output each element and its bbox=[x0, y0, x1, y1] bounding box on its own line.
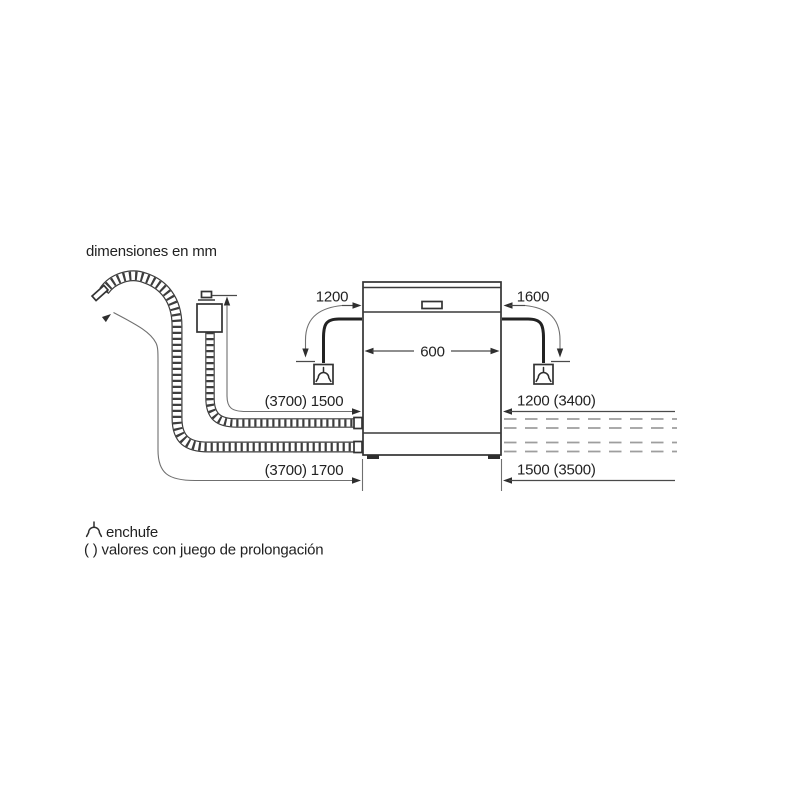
aquastop-box bbox=[197, 304, 222, 332]
drain-hose-length-label: (3700) 1700 bbox=[265, 462, 344, 479]
foot-right bbox=[488, 455, 500, 459]
installation-diagram: dimensiones en mm bbox=[0, 0, 800, 800]
right-extension-area: 1200 (3400) 1500 (3500) bbox=[503, 393, 677, 484]
diagram-title: dimensiones en mm bbox=[86, 243, 217, 260]
dimension-supply-hose: (3700) 1500 bbox=[212, 296, 361, 415]
legend: enchufe ( ) valores con juego de prolong… bbox=[84, 522, 323, 559]
diagram-stage: dimensiones en mm bbox=[0, 0, 800, 800]
control-panel-handle bbox=[422, 302, 442, 309]
cable-left: 1200 bbox=[296, 289, 362, 385]
plug-left-icon bbox=[314, 365, 333, 385]
legend-plug-label: enchufe bbox=[106, 524, 158, 541]
legend-parentheses-note: ( ) valores con juego de prolongación bbox=[84, 542, 323, 559]
supply-hose-length-label: (3700) 1500 bbox=[265, 393, 344, 410]
cable-right-label: 1600 bbox=[517, 289, 550, 306]
width-label: 600 bbox=[420, 344, 444, 361]
plug-right-icon bbox=[534, 365, 553, 385]
cable-right: 1600 bbox=[502, 289, 570, 385]
plug-legend-icon bbox=[87, 522, 102, 536]
right-lower-label: 1500 (3500) bbox=[517, 462, 596, 479]
right-upper-label: 1200 (3400) bbox=[517, 393, 596, 410]
supply-hose-collar bbox=[354, 418, 362, 429]
dishwasher-outline bbox=[363, 282, 502, 491]
tap-connector-icon bbox=[197, 292, 222, 333]
drain-hose-collar bbox=[354, 442, 362, 453]
foot-left bbox=[367, 455, 379, 459]
cable-left-label: 1200 bbox=[316, 289, 349, 306]
